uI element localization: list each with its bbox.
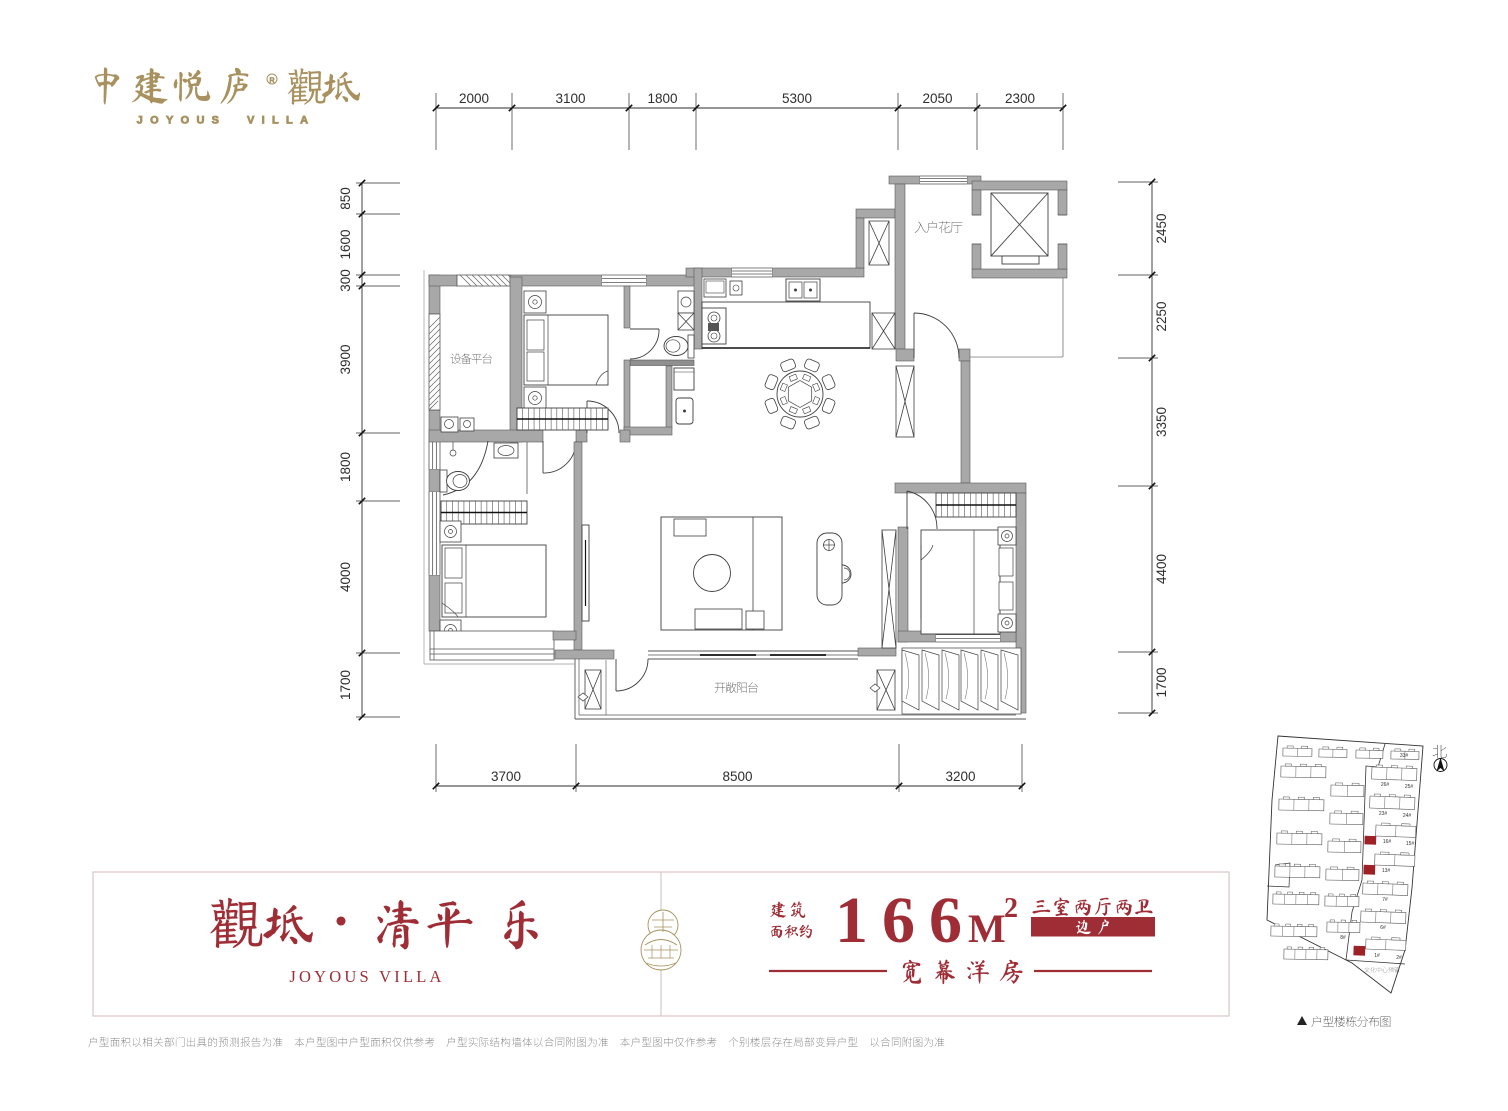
svg-text:166: 166: [835, 884, 976, 957]
svg-text:300: 300: [338, 269, 353, 292]
svg-text:3900: 3900: [338, 344, 353, 374]
svg-text:1700: 1700: [1154, 667, 1169, 697]
svg-text:1600: 1600: [338, 229, 353, 259]
svg-text:1#: 1#: [1374, 953, 1380, 959]
svg-text:2450: 2450: [1154, 213, 1169, 243]
svg-text:3100: 3100: [555, 91, 585, 106]
svg-text:6#: 6#: [1380, 925, 1386, 931]
svg-text:24#: 24#: [1403, 813, 1412, 819]
svg-text:7#: 7#: [1382, 897, 1388, 903]
svg-text:8#: 8#: [1340, 935, 1346, 941]
svg-text:33#: 33#: [1400, 753, 1409, 759]
svg-text:15#: 15#: [1406, 841, 1415, 847]
svg-text:2050: 2050: [922, 91, 952, 106]
svg-text:2300: 2300: [1005, 91, 1035, 106]
svg-text:5300: 5300: [782, 91, 812, 106]
svg-text:8500: 8500: [722, 769, 752, 784]
svg-text:3700: 3700: [491, 769, 521, 784]
svg-text:2000: 2000: [459, 91, 489, 106]
svg-text:850: 850: [338, 187, 353, 210]
svg-text:4400: 4400: [1154, 554, 1169, 584]
svg-text:1800: 1800: [338, 452, 353, 482]
svg-text:JOYOUS VILLA: JOYOUS VILLA: [289, 967, 444, 986]
svg-text:26#: 26#: [1381, 782, 1390, 788]
svg-text:4000: 4000: [338, 562, 353, 592]
svg-text:16#: 16#: [1383, 839, 1392, 845]
svg-text:25#: 25#: [1405, 784, 1414, 790]
svg-text:3350: 3350: [1154, 407, 1169, 437]
svg-text:23#: 23#: [1379, 811, 1388, 817]
svg-text:2#: 2#: [1396, 955, 1402, 961]
svg-text:2250: 2250: [1154, 301, 1169, 331]
svg-text:1800: 1800: [647, 91, 677, 106]
svg-text:3200: 3200: [945, 769, 975, 784]
svg-text:1700: 1700: [338, 670, 353, 700]
svg-text:2: 2: [1004, 893, 1018, 924]
svg-text:R: R: [269, 78, 274, 85]
svg-text:M: M: [968, 906, 1006, 951]
svg-text:13#: 13#: [1382, 868, 1391, 874]
svg-text:JOYOUS VILLA: JOYOUS VILLA: [137, 115, 316, 127]
